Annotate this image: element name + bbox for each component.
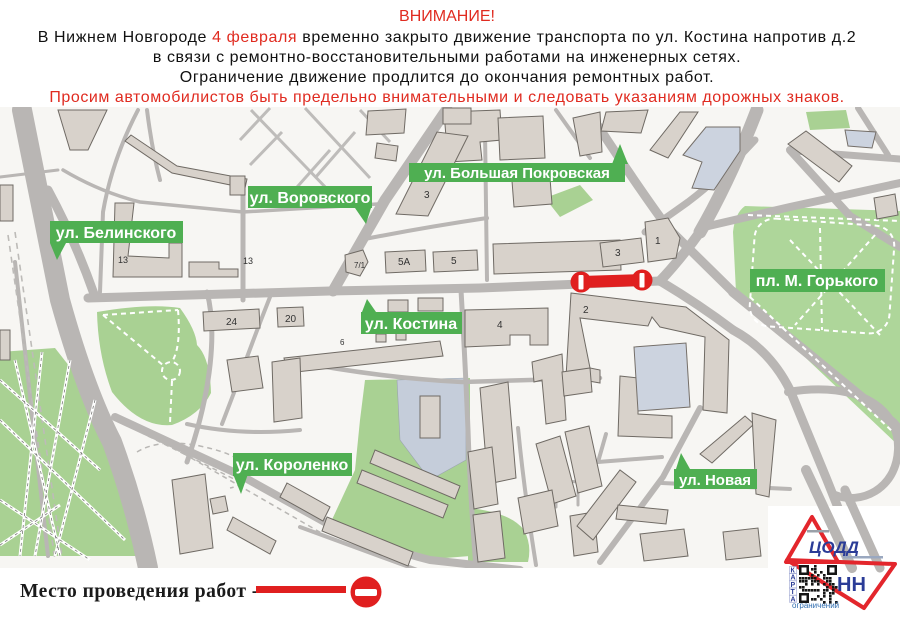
svg-text:3: 3 (615, 248, 621, 259)
svg-text:13: 13 (118, 255, 128, 265)
svg-text:7/1: 7/1 (354, 261, 366, 270)
svg-text:ЦОДД: ЦОДД (809, 538, 859, 557)
svg-text:1: 1 (655, 236, 661, 247)
svg-text:К: К (791, 568, 796, 575)
svg-text:5А: 5А (398, 257, 411, 268)
svg-text:ул. Новая: ул. Новая (679, 472, 751, 489)
svg-text:ул. Костина: ул. Костина (365, 316, 457, 333)
svg-text:ограничений: ограничений (792, 601, 839, 610)
svg-text:Р: Р (791, 582, 796, 589)
svg-text:13: 13 (243, 256, 253, 266)
svg-text:4: 4 (497, 320, 503, 331)
svg-text:ул. Короленко: ул. Короленко (236, 457, 349, 474)
svg-text:2: 2 (583, 305, 589, 316)
svg-text:ул. Белинского: ул. Белинского (56, 225, 177, 242)
svg-text:24: 24 (226, 317, 238, 328)
svg-text:ул. Большая Покровская: ул. Большая Покровская (424, 165, 610, 182)
svg-text:6: 6 (340, 338, 345, 347)
svg-text:3: 3 (424, 190, 430, 201)
svg-text:пл. М. Горького: пл. М. Горького (756, 273, 879, 290)
svg-text:5: 5 (451, 256, 457, 267)
svg-text:Место проведения работ -: Место проведения работ - (20, 581, 259, 602)
svg-text:ул. Воровского: ул. Воровского (250, 190, 371, 207)
svg-text:20: 20 (285, 314, 297, 325)
svg-text:А: А (791, 575, 796, 582)
svg-text:Т: Т (791, 589, 796, 596)
svg-text:НН: НН (837, 574, 866, 596)
